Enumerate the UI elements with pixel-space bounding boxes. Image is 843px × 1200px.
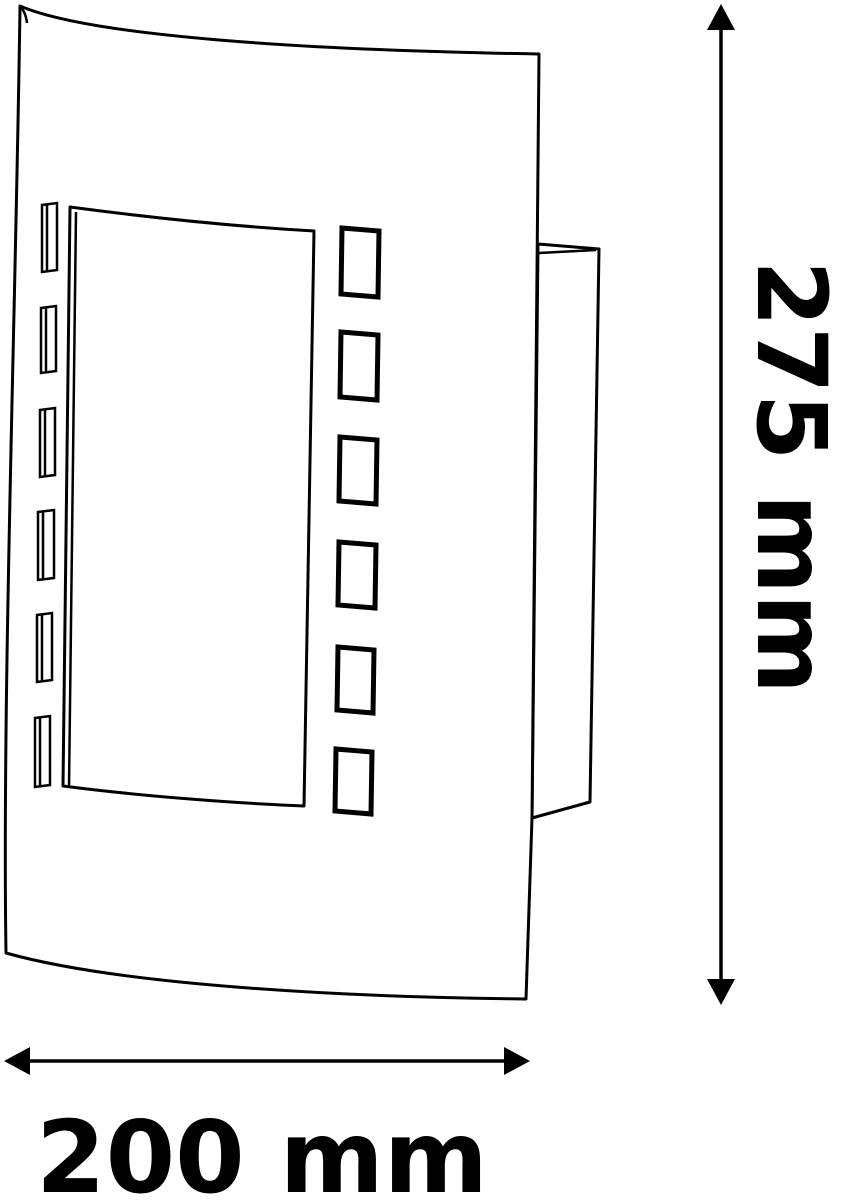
vent-slot	[38, 510, 54, 580]
vent-slot	[335, 749, 372, 814]
arrow-up-icon	[707, 4, 735, 30]
wall-lamp-drawing	[5, 6, 599, 999]
arrow-down-icon	[707, 979, 735, 1005]
arrow-right-icon	[504, 1047, 530, 1075]
width-dimension-label: 200 mm	[36, 1099, 488, 1200]
arrow-left-icon	[4, 1047, 30, 1075]
vent-slot	[339, 437, 377, 504]
vent-slot	[338, 542, 376, 608]
vent-slot	[341, 228, 379, 297]
vent-slot	[340, 332, 378, 400]
vent-slot	[41, 306, 56, 373]
window-cutout	[63, 207, 314, 806]
vent-slot	[337, 647, 374, 713]
dimension-drawing-canvas: 275 mm 200 mm	[0, 0, 843, 1200]
vent-slot	[40, 408, 55, 477]
vent-slot	[37, 613, 52, 682]
height-dimension-label: 275 mm	[735, 260, 843, 694]
width-dimension: 200 mm	[4, 1047, 530, 1200]
back-housing	[532, 244, 599, 818]
height-dimension: 275 mm	[707, 4, 843, 1005]
vent-slot	[35, 716, 50, 787]
dimension-drawing-page: 275 mm 200 mm	[0, 0, 843, 1200]
vent-slot	[42, 203, 57, 272]
